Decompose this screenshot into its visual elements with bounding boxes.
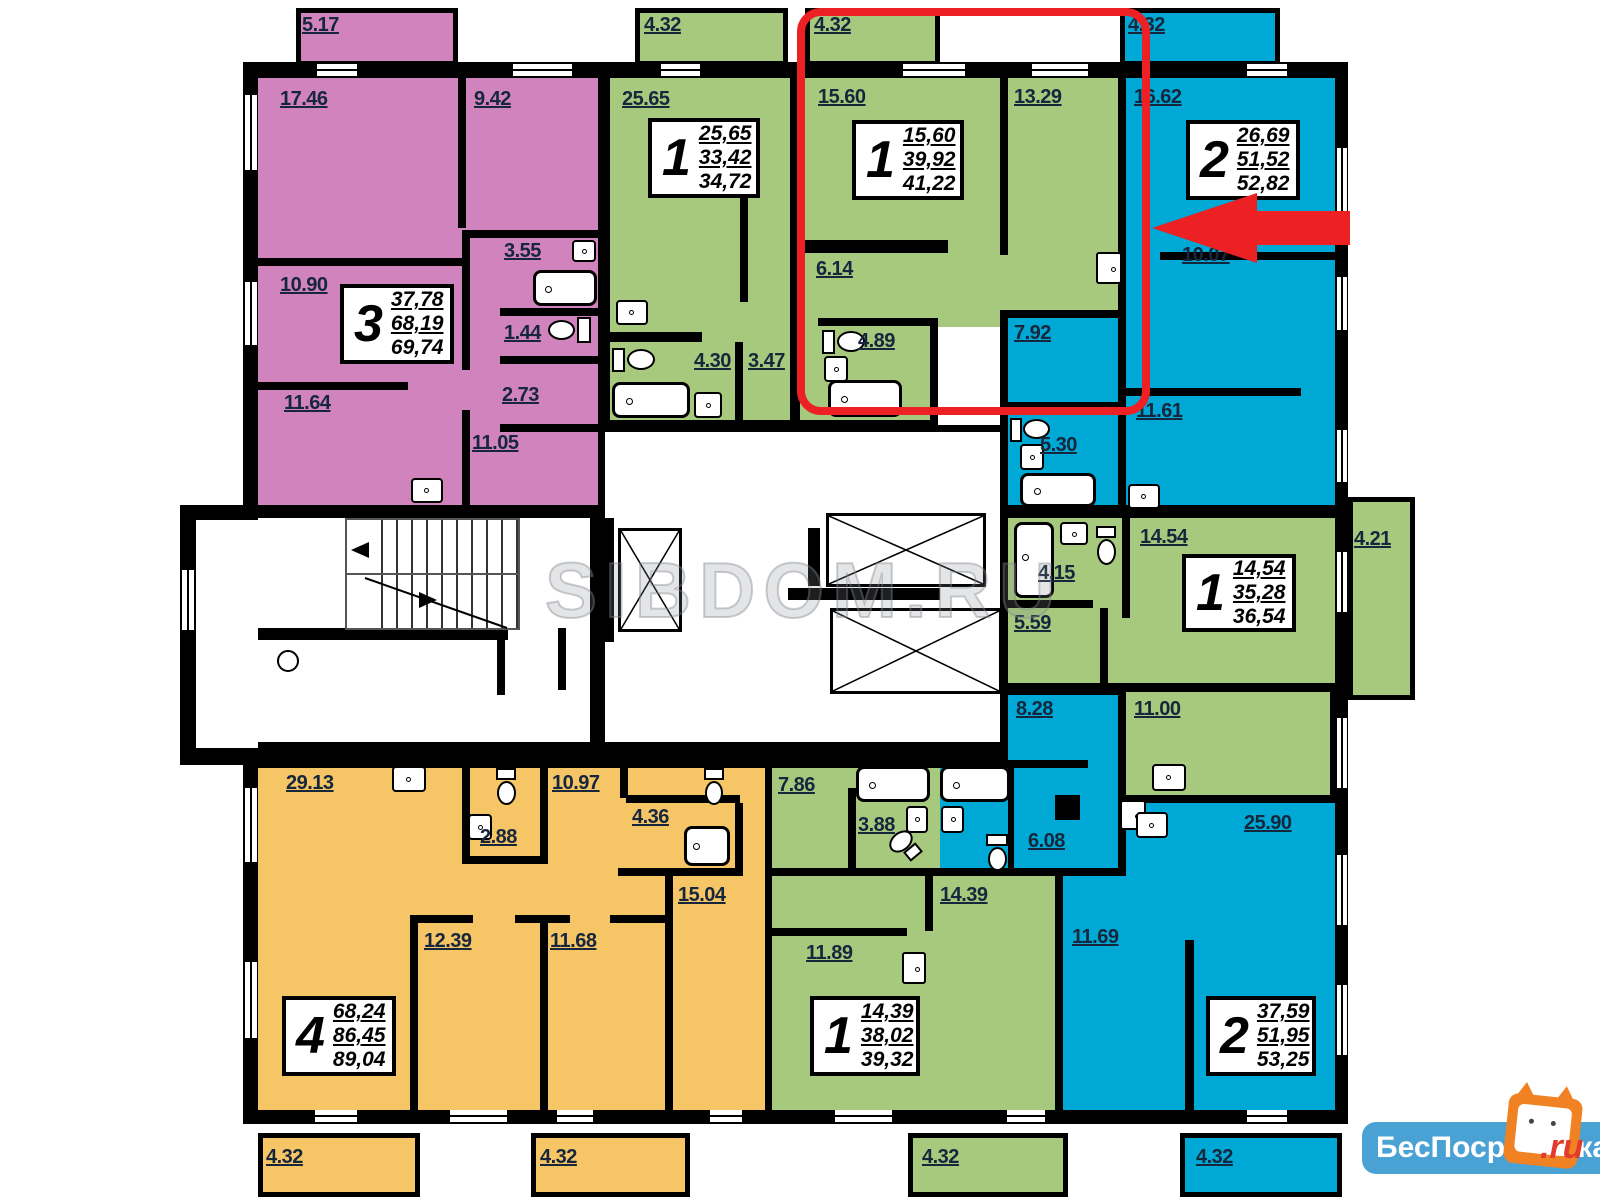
apartment-info-box: 2 26,6951,5252,82 — [1186, 120, 1300, 200]
bathtub — [533, 270, 597, 306]
sink — [694, 392, 722, 418]
sink — [572, 240, 596, 262]
window — [245, 962, 257, 1038]
sink — [906, 806, 928, 833]
sink — [1060, 522, 1088, 545]
toilet-tank — [496, 768, 516, 780]
wall-segment — [925, 876, 933, 931]
apartment-area: 38,02 — [861, 1024, 914, 1048]
area-label: 5.30 — [1040, 434, 1077, 457]
window — [1007, 1110, 1045, 1122]
apartment-area: 86,45 — [333, 1024, 386, 1048]
sink — [1152, 764, 1186, 791]
toilet — [627, 349, 655, 370]
cat-ear-icon — [1555, 1085, 1577, 1103]
window — [661, 64, 700, 76]
area-label: 11.05 — [472, 432, 518, 455]
bathtub — [856, 766, 930, 802]
sink — [392, 766, 426, 792]
wall-segment — [462, 768, 470, 858]
stair-arrow-icon — [419, 592, 437, 608]
column — [1055, 795, 1080, 820]
total-area: 53,25 — [1257, 1048, 1310, 1072]
area-label: 1.44 — [504, 322, 541, 345]
toilet — [1097, 539, 1116, 565]
area-label: 7.86 — [778, 774, 815, 797]
wall-segment — [500, 356, 598, 364]
arrow-head-icon — [1152, 193, 1257, 263]
rooms-count: 2 — [1200, 134, 1229, 186]
wall-segment — [735, 803, 743, 868]
corridor-extension — [196, 520, 258, 748]
toilet-tank — [986, 834, 1008, 846]
apartment-info-box: 4 68,2486,4589,04 — [282, 996, 396, 1076]
toilet — [988, 847, 1007, 871]
apartment-info-box: 1 25,6533,4234,72 — [648, 118, 760, 198]
bathtub — [940, 766, 1010, 802]
window — [182, 570, 194, 630]
rooms-count: 1 — [824, 1010, 853, 1062]
sink — [616, 300, 648, 325]
wall-segment — [500, 308, 598, 316]
area-label: 9.42 — [474, 88, 511, 111]
window — [835, 1110, 892, 1122]
highlight-rectangle — [797, 8, 1150, 415]
apartment-area: 68,19 — [391, 312, 444, 336]
toilet — [497, 781, 516, 805]
area-label: 3.88 — [858, 814, 895, 837]
window — [1247, 1110, 1287, 1122]
area-label: 3.47 — [748, 350, 785, 373]
wall-segment — [1122, 518, 1130, 618]
wall-segment — [1185, 940, 1194, 1110]
sink — [411, 478, 443, 503]
wall-segment — [497, 640, 505, 695]
area-label: 11.64 — [284, 392, 330, 415]
total-area: 69,74 — [391, 336, 444, 360]
living-area: 37,59 — [1257, 1000, 1310, 1024]
total-area: 39,32 — [861, 1048, 914, 1072]
balcony-door — [1337, 552, 1347, 612]
floor-plan: 5.17 17.46 9.42 10.90 3.55 1.44 2.73 11.… — [0, 0, 1600, 1200]
apartment-info-box: 2 37,5951,9553,25 — [1206, 996, 1316, 1076]
window — [245, 788, 257, 862]
rooms-count: 3 — [354, 298, 383, 350]
wall-segment — [607, 332, 702, 342]
toilet-tank — [1096, 526, 1116, 538]
area-label: 11.69 — [1072, 926, 1118, 949]
wall-segment — [1126, 388, 1301, 396]
area-label: 4.32 — [540, 1146, 577, 1169]
wall-segment — [258, 382, 408, 390]
wall-segment — [462, 856, 548, 864]
apartment-area: 51,52 — [1237, 148, 1290, 172]
window — [1337, 277, 1347, 330]
apartment-area: 51,95 — [1257, 1024, 1310, 1048]
toilet-tank — [577, 317, 591, 343]
area-label: 4.32 — [266, 1146, 303, 1169]
window — [1337, 985, 1347, 1055]
wall-segment — [418, 915, 473, 923]
window — [557, 1110, 593, 1122]
window — [1337, 148, 1347, 212]
wall-segment — [626, 795, 740, 803]
rooms-count: 4 — [296, 1010, 325, 1062]
cat-eye-icon — [1529, 1118, 1534, 1123]
total-area: 36,54 — [1233, 605, 1286, 629]
sink — [1128, 484, 1160, 509]
staircase — [345, 518, 520, 630]
area-label: 4.30 — [694, 350, 731, 373]
wall-segment — [458, 78, 466, 228]
wall-segment — [772, 928, 907, 936]
wall-segment — [848, 788, 856, 868]
window — [450, 1110, 507, 1122]
area-label: 14.54 — [1140, 526, 1188, 549]
area-label: 4.21 — [1354, 528, 1391, 551]
wall-segment — [665, 876, 673, 1110]
window — [513, 64, 572, 76]
living-area: 14,54 — [1233, 557, 1286, 581]
apartment-info-box: 1 14,5435,2836,54 — [1182, 554, 1296, 632]
window — [1337, 430, 1347, 482]
window — [1337, 855, 1347, 925]
bathtub — [684, 826, 730, 866]
area-label: 25.65 — [622, 88, 670, 111]
area-label: 8.28 — [1016, 698, 1053, 721]
wall-segment — [500, 424, 598, 432]
living-area: 26,69 — [1237, 124, 1290, 148]
area-label: 14.39 — [940, 884, 988, 907]
total-area: 89,04 — [333, 1048, 386, 1072]
area-label: 6.08 — [1028, 830, 1065, 853]
area-label: 11.89 — [806, 942, 852, 965]
toilet — [705, 781, 723, 805]
wall-segment — [258, 258, 466, 266]
apartment-area: 33,42 — [699, 146, 752, 170]
area-label: 4.32 — [644, 14, 681, 37]
area-label: 25.90 — [1244, 812, 1292, 835]
logo-suffix: .ru — [1540, 1128, 1583, 1167]
rooms-count: 1 — [1196, 567, 1225, 619]
stair-arrow-icon — [351, 542, 369, 558]
wall-segment — [610, 915, 670, 923]
rooms-count: 1 — [662, 132, 691, 184]
apartment-info-box: 1 14,3938,0239,32 — [810, 996, 920, 1076]
area-label: 11.68 — [550, 930, 596, 953]
wall-segment — [540, 768, 548, 858]
wall-segment — [466, 230, 598, 238]
area-label: 3.55 — [504, 240, 541, 263]
watermark: SIBDOM.RU — [545, 545, 1063, 636]
cat-eye-icon — [1551, 1121, 1556, 1126]
area-label: 10.90 — [280, 274, 328, 297]
wall-segment — [462, 230, 470, 370]
rooms-count: 2 — [1220, 1010, 1249, 1062]
bathtub — [1020, 473, 1096, 507]
area-label: 17.46 — [280, 88, 328, 111]
toilet — [548, 320, 575, 340]
wall-segment — [558, 628, 566, 690]
wall-segment — [540, 923, 548, 1110]
area-label: 15.04 — [678, 884, 726, 907]
toilet-tank — [612, 348, 625, 372]
wall-segment — [620, 768, 628, 798]
trash-chute — [277, 650, 299, 672]
apartment-info-box: 3 37,7868,1969,74 — [340, 284, 454, 364]
entry-door — [902, 952, 926, 984]
total-area: 34,72 — [699, 170, 752, 194]
area-label: 12.39 — [424, 930, 472, 953]
window — [245, 95, 257, 170]
area-label: 4.36 — [632, 806, 669, 829]
area-label: 11.00 — [1134, 698, 1180, 721]
wall-segment — [462, 410, 470, 505]
cat-ear-icon — [1515, 1081, 1537, 1099]
sink — [941, 806, 964, 833]
living-area: 37,78 — [391, 288, 444, 312]
area-label: 4.32 — [922, 1146, 959, 1169]
area-label: 5.17 — [302, 14, 339, 37]
living-area: 68,24 — [333, 1000, 386, 1024]
window — [315, 1110, 357, 1122]
apartment-area: 35,28 — [1233, 581, 1286, 605]
window — [317, 64, 357, 76]
toilet-tank — [1010, 418, 1022, 442]
stair-direction-line — [347, 520, 522, 632]
wall-segment — [1100, 608, 1108, 683]
wall-segment — [410, 915, 418, 1110]
window — [1247, 64, 1287, 76]
window — [245, 282, 257, 345]
arrow-shaft — [1255, 211, 1350, 245]
wall-segment — [515, 915, 570, 923]
sink — [1136, 812, 1168, 838]
window — [1337, 718, 1347, 788]
area-label: 10.97 — [552, 772, 600, 795]
window — [710, 1110, 742, 1122]
area-label: 4.32 — [1196, 1146, 1233, 1169]
living-area: 25,65 — [699, 122, 752, 146]
bathtub — [612, 382, 690, 418]
area-label: 2.73 — [502, 384, 539, 407]
toilet-tank — [704, 768, 724, 780]
area-label: 29.13 — [286, 772, 334, 795]
wall-segment — [735, 342, 743, 420]
wall-segment — [618, 868, 743, 876]
area-label: 2.88 — [480, 826, 517, 849]
wall-segment — [1008, 760, 1088, 768]
living-area: 14,39 — [861, 1000, 914, 1024]
